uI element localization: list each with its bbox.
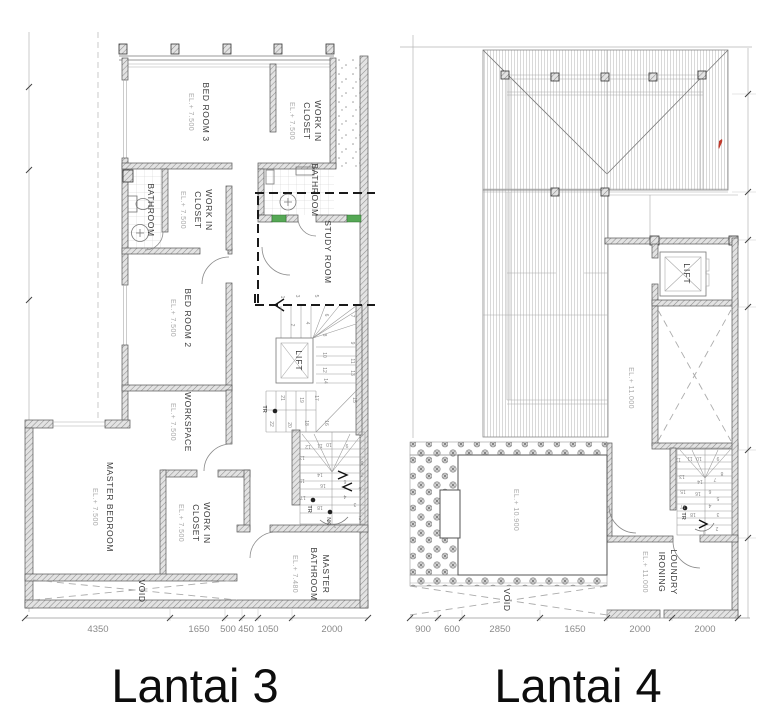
room-el-bedroom3: EL.+ 7.500 xyxy=(187,93,194,131)
stipple-area xyxy=(336,58,360,168)
svg-text:2000: 2000 xyxy=(321,624,342,635)
room-el-closet-mid: EL.+ 7.500 xyxy=(179,191,186,229)
room-label-bedroom2: BED ROOM 2 xyxy=(183,288,193,347)
svg-text:6: 6 xyxy=(343,478,346,484)
room-label-study: STUDY ROOM xyxy=(323,220,333,283)
room-label-master-closet: WORK IN xyxy=(202,502,212,544)
svg-text:14: 14 xyxy=(697,478,703,484)
svg-text:10: 10 xyxy=(321,352,327,358)
svg-text:13: 13 xyxy=(299,454,305,460)
room-label-master-bathroom: MASTER xyxy=(321,554,331,593)
stair-down-numbers: 1 2 3 4 5 6 7 8 9 10 11 12 13 14 15 16 1… xyxy=(299,441,363,528)
room-el-bedroom2: EL.+ 7.500 xyxy=(169,299,176,337)
room-label-workspace: WORKSPACE xyxy=(183,392,193,452)
svg-text:2000: 2000 xyxy=(629,624,650,635)
svg-text:17: 17 xyxy=(313,395,319,401)
room-label-master-bedroom: MASTER BEDROOM xyxy=(105,462,115,552)
svg-text:11: 11 xyxy=(349,358,355,363)
room-el-master-bathroom: EL.+ 7.480 xyxy=(291,555,298,593)
lift-label: LIFT xyxy=(294,350,303,371)
svg-text:4350: 4350 xyxy=(87,624,108,635)
terrace-lines xyxy=(608,195,738,238)
stair-down: TR NK 1 2 3 4 5 6 7 8 9 10 11 12 13 14 1… xyxy=(299,432,365,528)
svg-text:7: 7 xyxy=(360,471,363,477)
svg-text:18: 18 xyxy=(317,504,323,510)
svg-text:500: 500 xyxy=(220,624,236,635)
svg-text:BATHROOM: BATHROOM xyxy=(309,547,319,600)
colonnade xyxy=(119,44,334,67)
svg-text:17: 17 xyxy=(680,503,686,509)
room-label-loundry: LOUNDRY xyxy=(669,549,679,595)
svg-text:8: 8 xyxy=(321,334,327,337)
room-el-workspace: EL.+ 7.500 xyxy=(169,403,176,441)
svg-text:16: 16 xyxy=(695,490,701,496)
title-lantai-4: Lantai 4 xyxy=(494,659,661,712)
room-label-void4: VOID xyxy=(502,588,512,611)
svg-text:14: 14 xyxy=(317,471,323,477)
svg-text:21: 21 xyxy=(279,395,285,401)
svg-text:1: 1 xyxy=(333,522,336,528)
svg-text:11: 11 xyxy=(687,455,692,461)
svg-text:4: 4 xyxy=(343,493,346,499)
floor-plan-sheet: LIFT TR 1 2 3 4 5 6 7 8 9 10 11 12 13 14… xyxy=(0,0,773,720)
svg-text:11: 11 xyxy=(317,442,322,448)
svg-text:7: 7 xyxy=(713,476,716,482)
svg-text:1: 1 xyxy=(702,529,705,535)
svg-text:13: 13 xyxy=(349,370,355,376)
svg-text:14: 14 xyxy=(322,378,328,384)
room-label-bathroom-top: BATHROOM xyxy=(310,163,320,216)
svg-text:3: 3 xyxy=(716,511,719,517)
room-label-closet-mid: WORK IN xyxy=(204,189,214,231)
svg-text:8: 8 xyxy=(720,470,723,476)
stair-plan4: TR 1 2 3 4 5 6 7 8 9 10 11 12 13 14 15 1… xyxy=(675,448,732,535)
room-label-bedroom3: BED ROOM 3 xyxy=(201,82,211,141)
svg-text:19: 19 xyxy=(298,397,304,403)
svg-text:12: 12 xyxy=(675,456,681,462)
reference-lines-plan3 xyxy=(26,32,98,612)
svg-text:900: 900 xyxy=(415,624,431,635)
svg-text:1650: 1650 xyxy=(564,624,585,635)
svg-text:22: 22 xyxy=(268,421,274,427)
svg-text:2000: 2000 xyxy=(694,624,715,635)
svg-text:17: 17 xyxy=(300,494,306,500)
planting-band xyxy=(410,442,607,586)
svg-text:CLOSET: CLOSET xyxy=(193,191,203,229)
svg-text:2850: 2850 xyxy=(489,624,510,635)
svg-text:8: 8 xyxy=(360,459,363,465)
svg-text:18: 18 xyxy=(690,511,696,517)
room-el-loundry: EL.+ 11.000 xyxy=(641,551,648,593)
svg-text:13: 13 xyxy=(679,473,685,479)
dimensions-plan3: 4350 1650 500 450 1050 2000 xyxy=(22,608,371,635)
room-el-roof-terrace: EL.+ 10.900 xyxy=(512,489,519,531)
svg-text:9: 9 xyxy=(345,442,348,448)
svg-text:2: 2 xyxy=(289,324,295,327)
plan-lantai-4: LIFT TR 1 xyxy=(400,35,756,635)
svg-text:CLOSET: CLOSET xyxy=(191,504,201,542)
svg-text:15: 15 xyxy=(680,488,686,494)
svg-text:2: 2 xyxy=(715,525,718,531)
tr-label: TR xyxy=(680,512,686,519)
room-el-closet-top: EL.+ 7.500 xyxy=(288,102,295,140)
svg-text:15: 15 xyxy=(299,477,305,483)
lift-label: LIFT xyxy=(682,263,691,284)
plan-lantai-3: LIFT TR 1 2 3 4 5 6 7 8 9 10 11 12 13 14… xyxy=(22,32,375,635)
floor-plan-drawing: LIFT TR 1 2 3 4 5 6 7 8 9 10 11 12 13 14… xyxy=(0,0,773,720)
svg-text:12: 12 xyxy=(305,443,311,449)
svg-text:600: 600 xyxy=(444,624,460,635)
stair-up: LIFT TR 1 2 3 4 5 6 7 8 9 10 11 12 13 14… xyxy=(261,295,357,432)
svg-text:18: 18 xyxy=(303,420,309,426)
stair-up-numbers: 1 2 3 4 5 6 7 8 9 10 11 12 13 14 15 16 1… xyxy=(268,295,357,428)
svg-text:450: 450 xyxy=(238,624,254,635)
svg-text:CLOSET: CLOSET xyxy=(302,102,312,140)
svg-text:16: 16 xyxy=(320,482,326,488)
room-el-master-closet: EL.+ 7.500 xyxy=(177,504,184,542)
svg-text:6: 6 xyxy=(708,488,711,494)
x-room xyxy=(658,310,731,441)
svg-text:12: 12 xyxy=(321,367,327,373)
lift-plan4: LIFT xyxy=(660,252,709,296)
void-area-plan3 xyxy=(33,580,237,600)
svg-text:20: 20 xyxy=(286,422,292,428)
tr-marker-dot xyxy=(273,409,278,414)
svg-text:2: 2 xyxy=(358,514,361,520)
room-el-master-bedroom: EL.+ 7.500 xyxy=(91,488,98,526)
title-lantai-3: Lantai 3 xyxy=(111,659,278,712)
svg-text:10: 10 xyxy=(326,441,332,447)
svg-text:10: 10 xyxy=(696,455,702,461)
room-label-closet-top: WORK IN xyxy=(313,100,323,142)
svg-text:4: 4 xyxy=(304,322,310,325)
svg-text:16: 16 xyxy=(323,420,329,426)
svg-text:5: 5 xyxy=(716,495,719,501)
tr-label: TR xyxy=(306,505,312,512)
svg-text:5: 5 xyxy=(358,485,361,491)
tr-label: TR xyxy=(261,405,267,412)
room-label-void3: VOID xyxy=(137,579,147,602)
svg-text:4: 4 xyxy=(708,502,711,508)
nk-label: NK xyxy=(325,517,331,525)
room-el-hall: EL.+ 11.000 xyxy=(627,367,634,409)
svg-text:3: 3 xyxy=(353,501,356,507)
svg-text:15: 15 xyxy=(351,397,357,403)
svg-text:9: 9 xyxy=(349,342,355,345)
svg-text:7: 7 xyxy=(349,315,355,318)
room-label-bathroom-left: BATHROOM xyxy=(146,183,156,236)
stair4-numbers: 1 2 3 4 5 6 7 8 9 10 11 12 13 14 15 16 1… xyxy=(675,455,723,535)
svg-text:1650: 1650 xyxy=(188,624,209,635)
svg-text:9: 9 xyxy=(716,455,719,461)
svg-text:3: 3 xyxy=(294,295,300,298)
svg-text:1050: 1050 xyxy=(257,624,278,635)
svg-text:IRONING: IRONING xyxy=(657,552,667,593)
svg-text:5: 5 xyxy=(313,295,319,298)
svg-text:1: 1 xyxy=(279,296,285,299)
svg-text:6: 6 xyxy=(323,314,329,317)
